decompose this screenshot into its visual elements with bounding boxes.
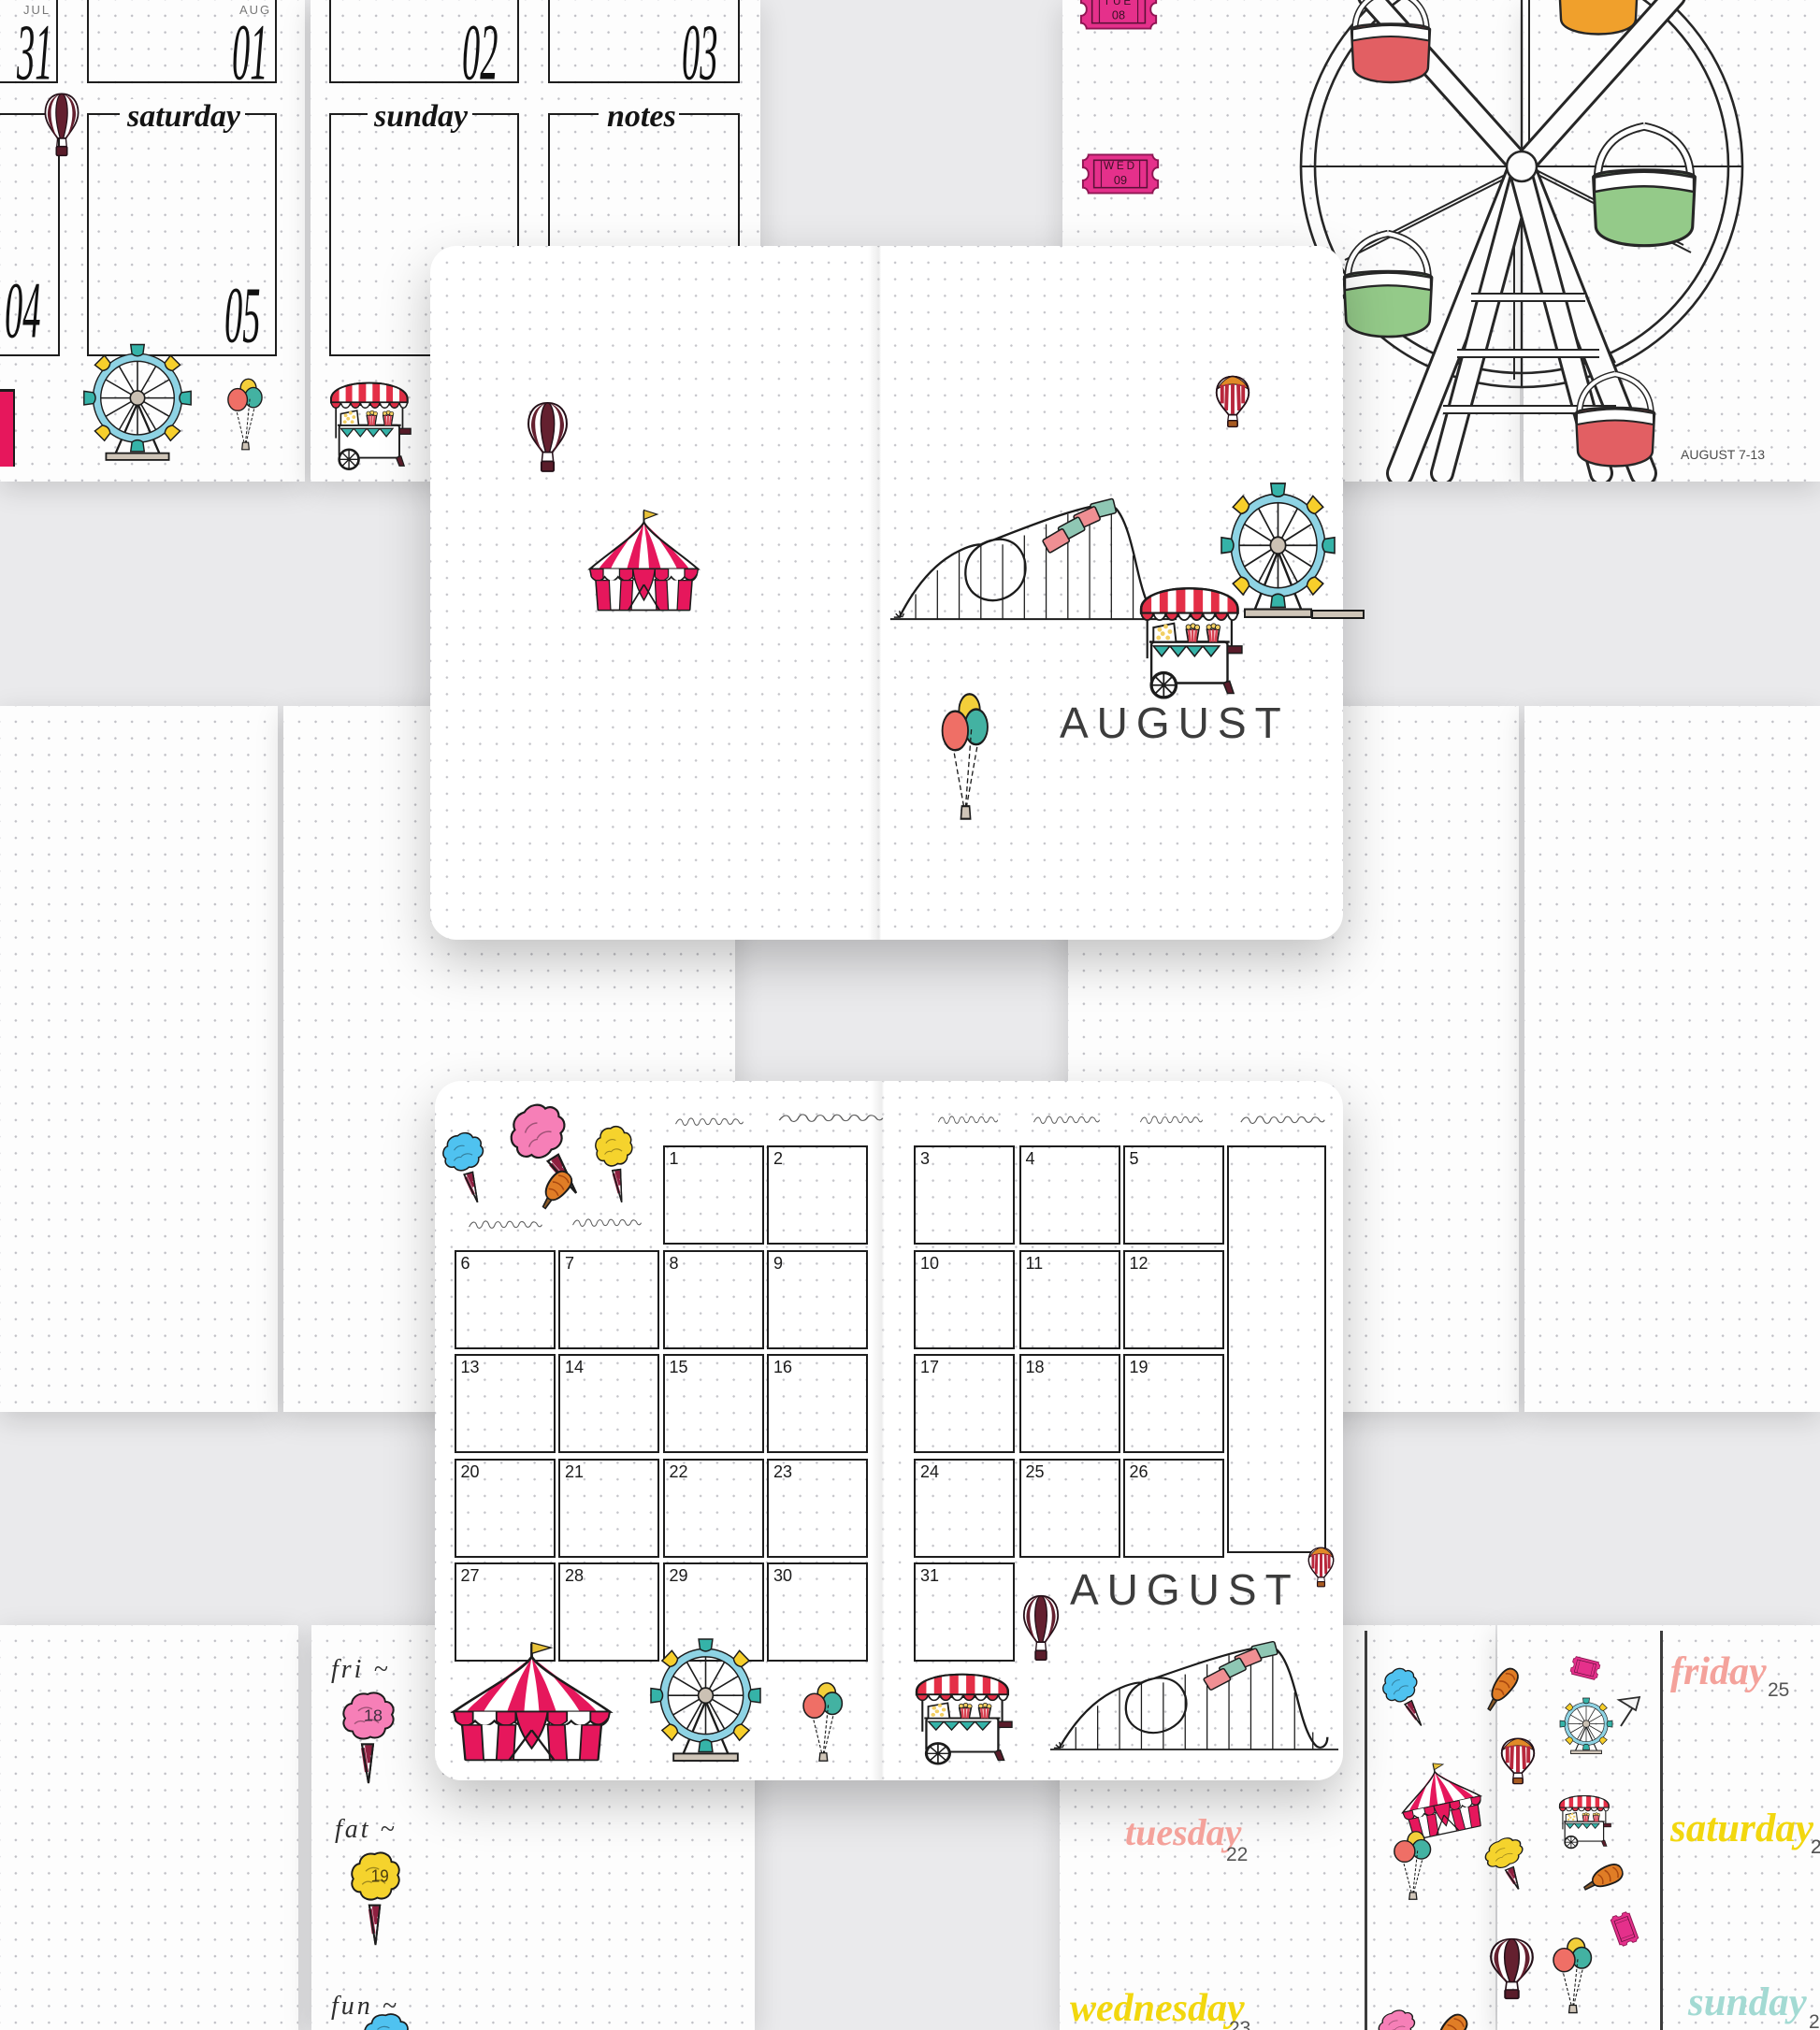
- svg-text:19: 19: [371, 1866, 389, 1886]
- svg-text:18: 18: [364, 1706, 383, 1725]
